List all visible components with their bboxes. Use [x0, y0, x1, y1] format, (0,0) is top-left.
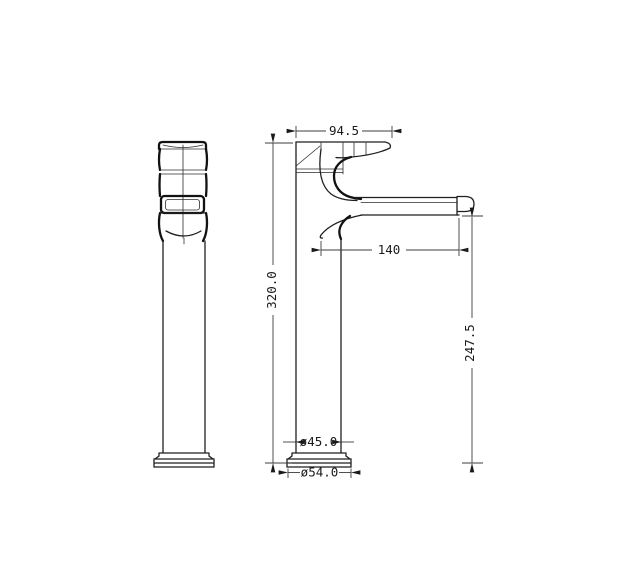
side-spout-end: [161, 196, 204, 213]
dim-spout-outlet-height: 247.5: [462, 216, 483, 463]
side-spout-end-inner: [166, 200, 200, 211]
side-handle-cap-face-line: [159, 145, 206, 149]
dim-handle-width: 94.5: [296, 123, 392, 138]
faucet-technical-drawing: 94.5 140 320.0 247.5 ø45.0: [0, 0, 639, 585]
front-lower-inner-curve: [339, 216, 350, 239]
side-base: [154, 453, 214, 467]
front-spout-top: [355, 198, 459, 216]
side-column: [163, 241, 205, 453]
front-lever-segment-ticks: [354, 143, 366, 157]
dimensions: 94.5 140 320.0 247.5 ø45.0: [264, 123, 483, 480]
dim-overall-height: 320.0: [264, 143, 293, 463]
front-neck-inner-curve: [334, 157, 361, 199]
technical-drawing-canvas: 94.5 140 320.0 247.5 ø45.0: [0, 0, 639, 585]
dim-overall-height-label: 320.0: [264, 271, 279, 309]
front-view: [287, 142, 474, 467]
side-view: [154, 142, 214, 467]
dim-base-diameter-label: ø54.0: [301, 465, 339, 480]
dim-spout-reach-label: 140: [378, 242, 401, 257]
dim-spout-outlet-height-label: 247.5: [462, 324, 477, 362]
front-spout-end-cap: [457, 197, 474, 216]
dim-body-diameter: ø45.0: [283, 434, 354, 449]
dim-body-diameter-label: ø45.0: [300, 434, 338, 449]
dim-handle-width-label: 94.5: [329, 123, 359, 138]
